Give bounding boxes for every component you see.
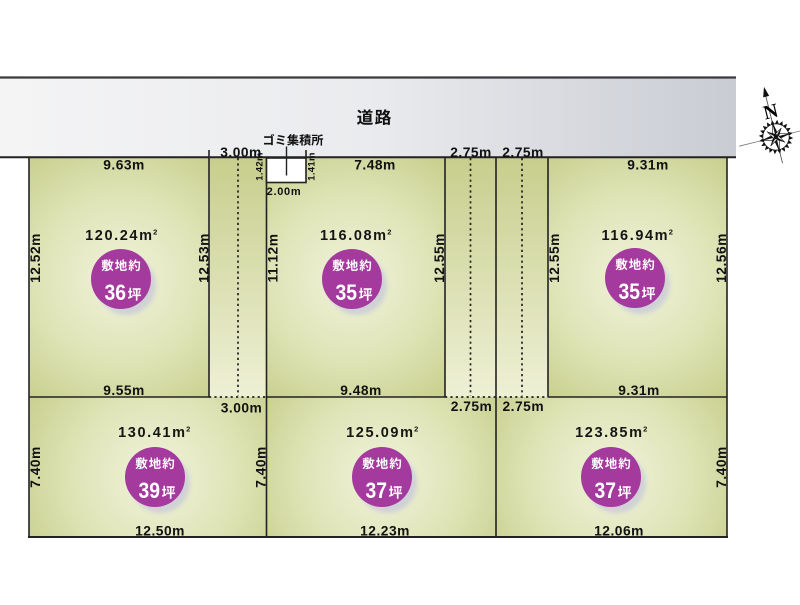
svg-text:123.85m2: 123.85m2	[575, 425, 649, 442]
svg-text:116.94m2: 116.94m2	[602, 228, 675, 245]
svg-text:12.53m: 12.53m	[197, 233, 212, 283]
svg-text:7.48m: 7.48m	[354, 157, 396, 172]
svg-text:125.09m2: 125.09m2	[346, 425, 420, 442]
svg-text:116.08m2: 116.08m2	[320, 228, 393, 245]
svg-text:39: 39	[139, 478, 161, 503]
svg-text:7.40m: 7.40m	[254, 446, 269, 488]
svg-text:9.48m: 9.48m	[340, 383, 382, 398]
svg-text:7.40m: 7.40m	[714, 446, 729, 488]
svg-text:37: 37	[366, 478, 388, 503]
svg-text:35: 35	[336, 280, 358, 305]
svg-text:3.00m: 3.00m	[221, 401, 263, 416]
svg-text:9.55m: 9.55m	[103, 383, 145, 398]
svg-text:2.75m: 2.75m	[502, 399, 544, 414]
svg-text:9.31m: 9.31m	[618, 383, 660, 398]
svg-text:36: 36	[105, 280, 127, 305]
svg-text:12.23m: 12.23m	[360, 524, 410, 539]
svg-text:37: 37	[595, 478, 617, 503]
svg-text:130.41m2: 130.41m2	[118, 425, 192, 442]
svg-text:1.41m: 1.41m	[307, 152, 318, 180]
svg-text:12.50m: 12.50m	[135, 524, 185, 539]
svg-text:2.75m: 2.75m	[450, 145, 492, 160]
svg-text:1.42m: 1.42m	[255, 152, 266, 180]
svg-text:120.24m2: 120.24m2	[85, 228, 159, 245]
svg-text:9.31m: 9.31m	[627, 157, 669, 172]
svg-text:12.06m: 12.06m	[594, 524, 644, 539]
svg-text:12.56m: 12.56m	[714, 233, 729, 283]
svg-text:35: 35	[619, 279, 641, 304]
svg-text:12.55m: 12.55m	[547, 233, 562, 283]
svg-text:9.63m: 9.63m	[103, 157, 145, 172]
svg-text:2.00m: 2.00m	[267, 186, 302, 198]
svg-text:2.75m: 2.75m	[451, 399, 493, 414]
svg-text:12.52m: 12.52m	[28, 233, 43, 283]
svg-text:12.55m: 12.55m	[432, 233, 447, 283]
svg-text:7.40m: 7.40m	[28, 446, 43, 488]
svg-text:11.12m: 11.12m	[265, 233, 280, 282]
svg-text:2.75m: 2.75m	[502, 145, 544, 160]
